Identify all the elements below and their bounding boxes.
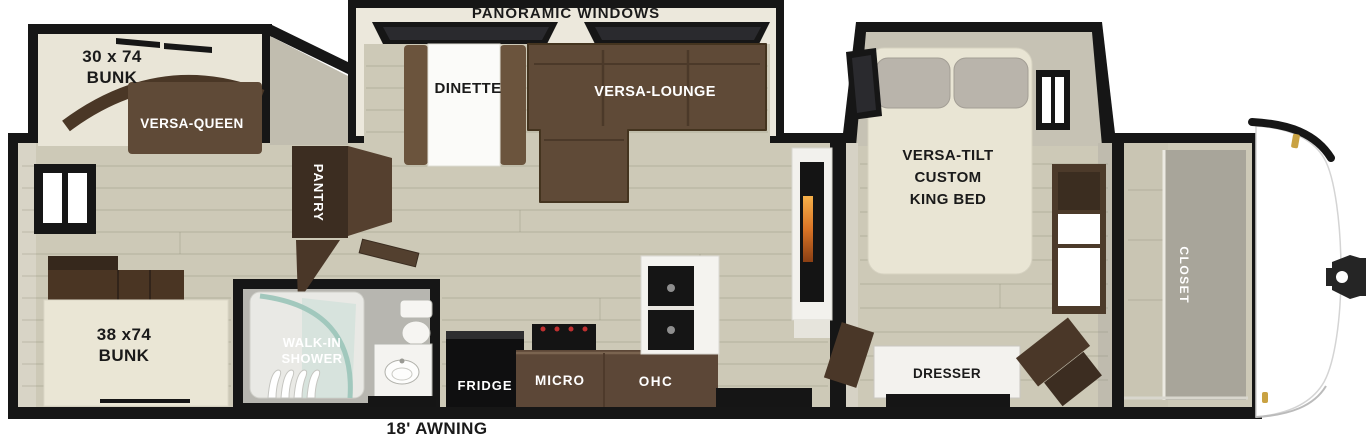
king-bed-label: VERSA-TILT CUSTOM KING BED bbox=[878, 145, 1018, 210]
fridge-box bbox=[446, 331, 524, 407]
dinette-bench bbox=[404, 45, 428, 165]
dinette-bench bbox=[500, 45, 526, 165]
left-wall-band bbox=[18, 143, 36, 407]
cap-latch-icon bbox=[1262, 392, 1268, 403]
dresser-mat bbox=[886, 394, 1010, 407]
floorplan-canvas: PANORAMIC WINDOWS 30 x 74 BUNK VERSA-QUE… bbox=[0, 0, 1366, 441]
closet-label: CLOSET bbox=[1177, 236, 1191, 314]
bunk-lower-label: 38 x74 BUNK bbox=[62, 324, 186, 367]
versa-queen-label: VERSA-QUEEN bbox=[126, 116, 258, 132]
bedroom-window-icon bbox=[1036, 70, 1070, 130]
pantry-cabinet-side bbox=[348, 146, 392, 236]
panoramic-windows-label: PANORAMIC WINDOWS bbox=[348, 5, 784, 23]
drawer-knob-icon bbox=[667, 284, 675, 292]
entertainment-step bbox=[794, 320, 830, 338]
pillow-icon bbox=[876, 58, 950, 108]
entry-mat bbox=[716, 388, 812, 407]
faucet-icon bbox=[400, 359, 405, 364]
micro-label: MICRO bbox=[520, 373, 600, 389]
versa-lounge-label: VERSA-LOUNGE bbox=[583, 84, 727, 101]
front-cap-group bbox=[1252, 122, 1366, 417]
closet-floor bbox=[1124, 143, 1168, 407]
bunk-over-label: 30 x 74 BUNK bbox=[50, 47, 174, 88]
bunk-base-line bbox=[100, 399, 190, 403]
drawer-knob-icon bbox=[667, 326, 675, 334]
closet-partition-wall bbox=[1112, 143, 1124, 407]
fireplace-glow bbox=[803, 196, 813, 262]
awning-label: 18' AWNING bbox=[337, 419, 537, 439]
walk-in-shower-label: WALK-IN SHOWER bbox=[262, 335, 362, 368]
pantry-label: PANTRY bbox=[310, 148, 326, 238]
dresser-label: DRESSER bbox=[897, 366, 997, 382]
ohc-label: OHC bbox=[616, 374, 696, 390]
vanity-base bbox=[368, 396, 436, 407]
pillow-icon bbox=[954, 58, 1028, 108]
fridge-label: FRIDGE bbox=[445, 378, 525, 394]
dinette-table bbox=[428, 44, 500, 166]
toilet-icon bbox=[402, 321, 430, 345]
toilet-tank bbox=[400, 300, 432, 318]
dinette-label: DINETTE bbox=[418, 80, 518, 98]
